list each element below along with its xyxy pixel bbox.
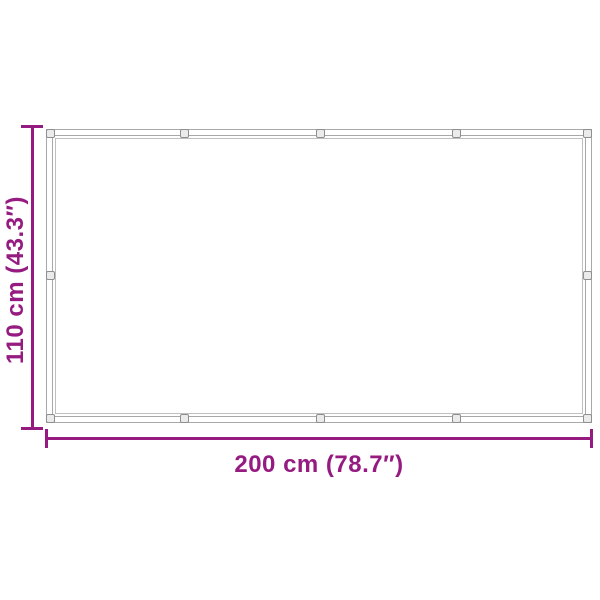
height-dimension-cap-top	[21, 125, 43, 128]
grommet-icon	[583, 129, 592, 138]
grommet-icon	[583, 271, 592, 280]
product-dimension-diagram: 110 cm (43.3″) 200 cm (78.7″)	[0, 0, 600, 600]
height-dimension-line	[31, 125, 34, 430]
width-dimension-line	[45, 437, 593, 440]
tarp-stitch-line	[55, 138, 583, 414]
width-dimension-cap-left	[45, 429, 48, 448]
grommet-icon	[46, 414, 55, 423]
width-dimension-label: 200 cm (78.7″)	[45, 451, 593, 479]
grommet-icon	[180, 129, 189, 138]
grommet-icon	[316, 129, 325, 138]
grommet-icon	[316, 414, 325, 423]
grommet-icon	[452, 414, 461, 423]
grommet-icon	[46, 129, 55, 138]
grommet-icon	[583, 414, 592, 423]
grommet-icon	[452, 129, 461, 138]
width-dimension-cap-right	[590, 429, 593, 448]
height-dimension-label: 110 cm (43.3″)	[2, 130, 30, 430]
grommet-icon	[180, 414, 189, 423]
grommet-icon	[46, 271, 55, 280]
